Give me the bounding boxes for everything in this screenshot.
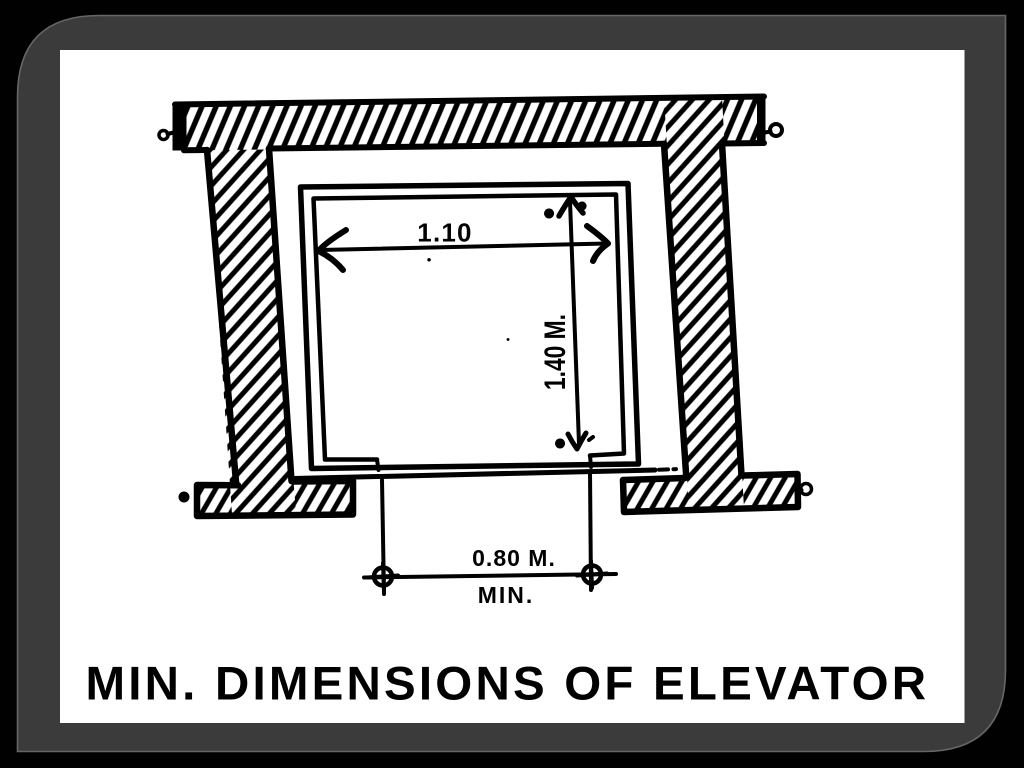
svg-text:1.10: 1.10 <box>417 218 472 248</box>
svg-text:MIN. DIMENSIONS OF ELEVATOR: MIN. DIMENSIONS OF ELEVATOR <box>86 658 930 711</box>
svg-text:0.80 M.: 0.80 M. <box>472 545 556 571</box>
svg-text:1.40 M.: 1.40 M. <box>539 314 572 390</box>
svg-text:MIN.: MIN. <box>478 582 535 608</box>
